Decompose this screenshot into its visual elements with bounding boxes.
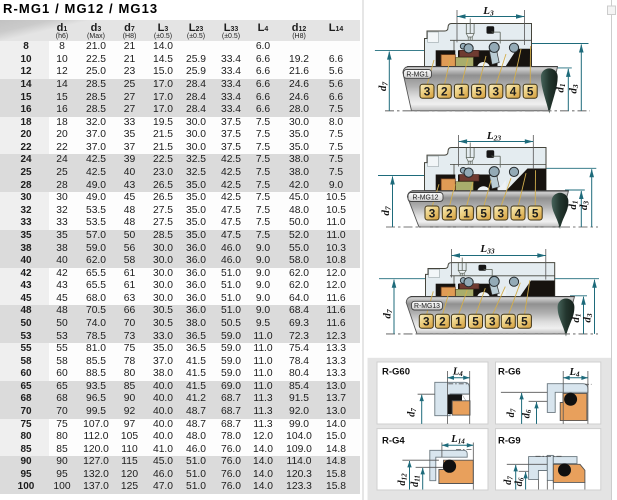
svg-text:3: 3 <box>489 315 496 329</box>
svg-text:d7: d7 <box>377 82 390 92</box>
svg-text:3: 3 <box>498 206 505 220</box>
svg-text:L33: L33 <box>479 243 494 256</box>
svg-text:R-G4: R-G4 <box>382 436 405 447</box>
svg-text:5: 5 <box>480 206 487 220</box>
svg-text:R-G9: R-G9 <box>498 436 521 447</box>
svg-text:R-G60: R-G60 <box>382 367 410 378</box>
svg-text:5: 5 <box>475 85 482 99</box>
svg-text:3: 3 <box>493 85 500 99</box>
svg-text:5: 5 <box>527 85 534 99</box>
svg-text:1: 1 <box>463 206 470 220</box>
svg-text:R-MG12: R-MG12 <box>412 195 438 202</box>
svg-text:2: 2 <box>441 85 448 99</box>
svg-text:d7: d7 <box>382 309 395 319</box>
svg-text:R-MG1: R-MG1 <box>406 71 428 78</box>
svg-text:5: 5 <box>472 315 479 329</box>
svg-text:3: 3 <box>423 315 430 329</box>
svg-text:5: 5 <box>521 315 528 329</box>
svg-text:R-MG13: R-MG13 <box>414 303 440 310</box>
svg-text:3: 3 <box>429 206 436 220</box>
svg-text:2: 2 <box>446 206 453 220</box>
svg-text:L23: L23 <box>486 130 501 143</box>
svg-text:4: 4 <box>505 315 512 329</box>
svg-text:5: 5 <box>532 206 539 220</box>
svg-text:d3: d3 <box>578 201 591 211</box>
svg-text:d3: d3 <box>567 84 580 94</box>
svg-text:1: 1 <box>458 85 465 99</box>
svg-text:2: 2 <box>439 315 446 329</box>
svg-text:3: 3 <box>424 85 431 99</box>
svg-text:d7: d7 <box>380 206 393 216</box>
svg-text:1: 1 <box>455 315 462 329</box>
svg-text:R-G6: R-G6 <box>498 367 521 378</box>
svg-text:4: 4 <box>510 85 517 99</box>
svg-text:4: 4 <box>515 206 522 220</box>
svg-text:L3: L3 <box>482 5 494 18</box>
